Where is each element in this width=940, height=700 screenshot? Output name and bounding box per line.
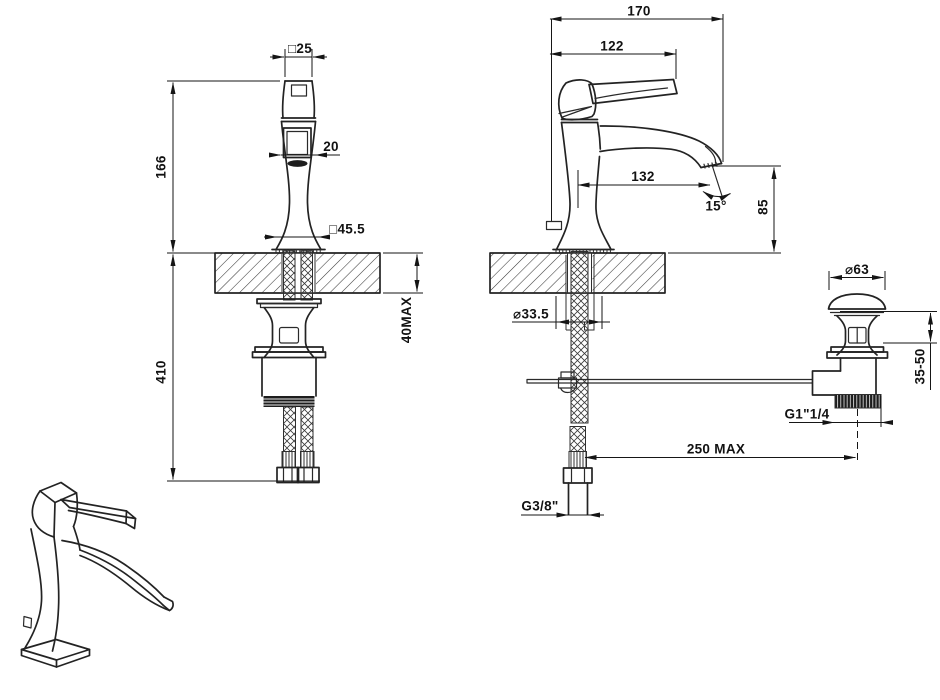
front-view: □25 166 20 □45.5 40MAX 410 (154, 41, 424, 483)
waste-outline (813, 294, 888, 464)
handle-logo-plate (292, 85, 307, 96)
supply-hose-right (301, 251, 313, 300)
dim-height-above: 166 (154, 81, 281, 252)
aerator (288, 160, 308, 167)
dim-text-handle-depth: 122 (600, 39, 623, 54)
dim-text-cap-diameter: ⌀63 (845, 262, 869, 277)
iso-lever (61, 500, 136, 519)
front-popup-waste (253, 299, 326, 483)
dim-rod-max: 250 MAX (585, 442, 856, 458)
dim-counter-max: 40MAX (383, 253, 423, 343)
dim-outlet: 20 (271, 139, 340, 155)
dim-height-range: 35-50 (840, 312, 937, 391)
dim-text-height-below: 410 (154, 360, 169, 383)
dim-text-height-above: 166 (154, 155, 169, 179)
dim-base-square: □45.5 (264, 222, 365, 238)
dim-supply-thread: G3/8" (521, 499, 604, 516)
technical-drawing-canvas: □25 166 20 □45.5 40MAX 410 (0, 0, 940, 700)
dim-text-outlet-height: 85 (756, 199, 771, 215)
dim-text-hole-diameter: ⌀33.5 (513, 307, 549, 322)
spout-window (284, 128, 312, 158)
rod-socket (813, 371, 841, 395)
supply-tail (569, 483, 588, 515)
side-view: 170 122 132 15° 85 ⌀33.5 (490, 4, 856, 516)
supply-hose (571, 252, 588, 424)
lever-handle (589, 80, 677, 104)
iso-handle-top (40, 483, 77, 503)
supply-hose-left (284, 251, 296, 300)
waste-thread-side (835, 395, 881, 409)
hose-left (284, 407, 296, 452)
isometric-view (22, 483, 174, 668)
dim-text-outlet: 20 (323, 139, 339, 154)
handle-travel-mark (547, 222, 562, 230)
dim-text-spout-reach: 132 (631, 169, 654, 184)
front-faucet-outline (272, 81, 325, 253)
spout (600, 126, 721, 164)
dim-handle-depth: 122 (550, 39, 676, 80)
dim-text-overall-depth: 170 (627, 4, 650, 19)
dim-text-supply-thread: G3/8" (521, 499, 558, 514)
dim-handle-square: □25 (270, 41, 327, 77)
dim-text-height-range: 35-50 (913, 348, 928, 384)
iso-rod-tab (24, 617, 32, 629)
waste-window (280, 328, 299, 344)
popup-rod (527, 380, 812, 384)
dim-text-counter-max: 40MAX (399, 297, 414, 344)
dim-cap-diameter: ⌀63 (829, 262, 885, 290)
dim-text-outlet-thread: G1"1/4 (785, 407, 830, 422)
front-countertop (215, 251, 380, 300)
iso-spout (62, 541, 164, 598)
hose-right (301, 407, 313, 452)
iso-base (22, 640, 90, 661)
technical-drawing-page: □25 166 20 □45.5 40MAX 410 (0, 0, 940, 700)
waste-detail-view: ⌀63 35-50 G1"1/4 (785, 262, 937, 464)
dim-overall-depth: 170 (550, 4, 723, 163)
dim-text-flow-angle: 15° (705, 199, 726, 214)
dim-hole-diameter: ⌀33.5 (512, 296, 610, 329)
iso-body (25, 529, 42, 648)
waste-cap (829, 294, 886, 309)
dim-text-base-square: □45.5 (329, 222, 365, 237)
dim-text-rod-max: 250 MAX (687, 442, 745, 457)
dim-text-handle-square: □25 (288, 41, 312, 56)
dim-flow-angle: 15° (703, 167, 731, 214)
